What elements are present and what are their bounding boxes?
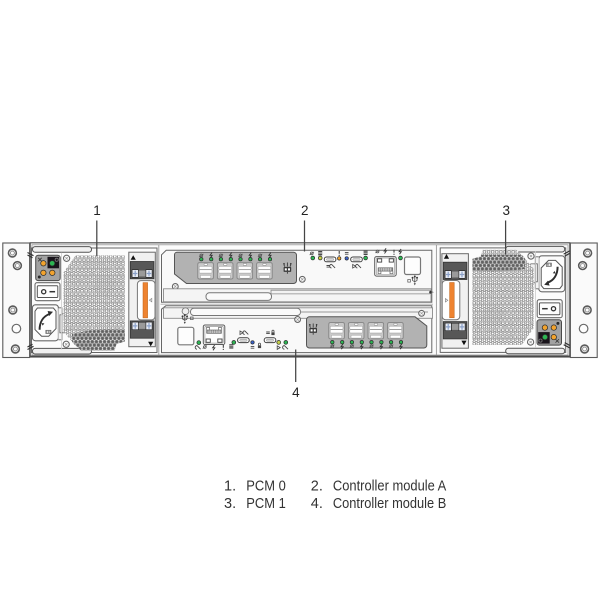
svg-text:4: 4: [292, 385, 300, 400]
svg-text:4.: 4.: [311, 496, 323, 512]
svg-text:1: 1: [93, 203, 101, 218]
svg-text:3.: 3.: [224, 496, 236, 512]
svg-text:Controller module B: Controller module B: [333, 496, 446, 512]
svg-text:2: 2: [301, 203, 309, 218]
svg-text:2.: 2.: [311, 479, 323, 495]
svg-text:PCM 1: PCM 1: [246, 496, 285, 512]
svg-text:PCM 0: PCM 0: [246, 479, 285, 495]
svg-text:3: 3: [503, 203, 511, 218]
svg-text:1.: 1.: [224, 479, 236, 495]
svg-text:Controller module A: Controller module A: [333, 479, 447, 495]
